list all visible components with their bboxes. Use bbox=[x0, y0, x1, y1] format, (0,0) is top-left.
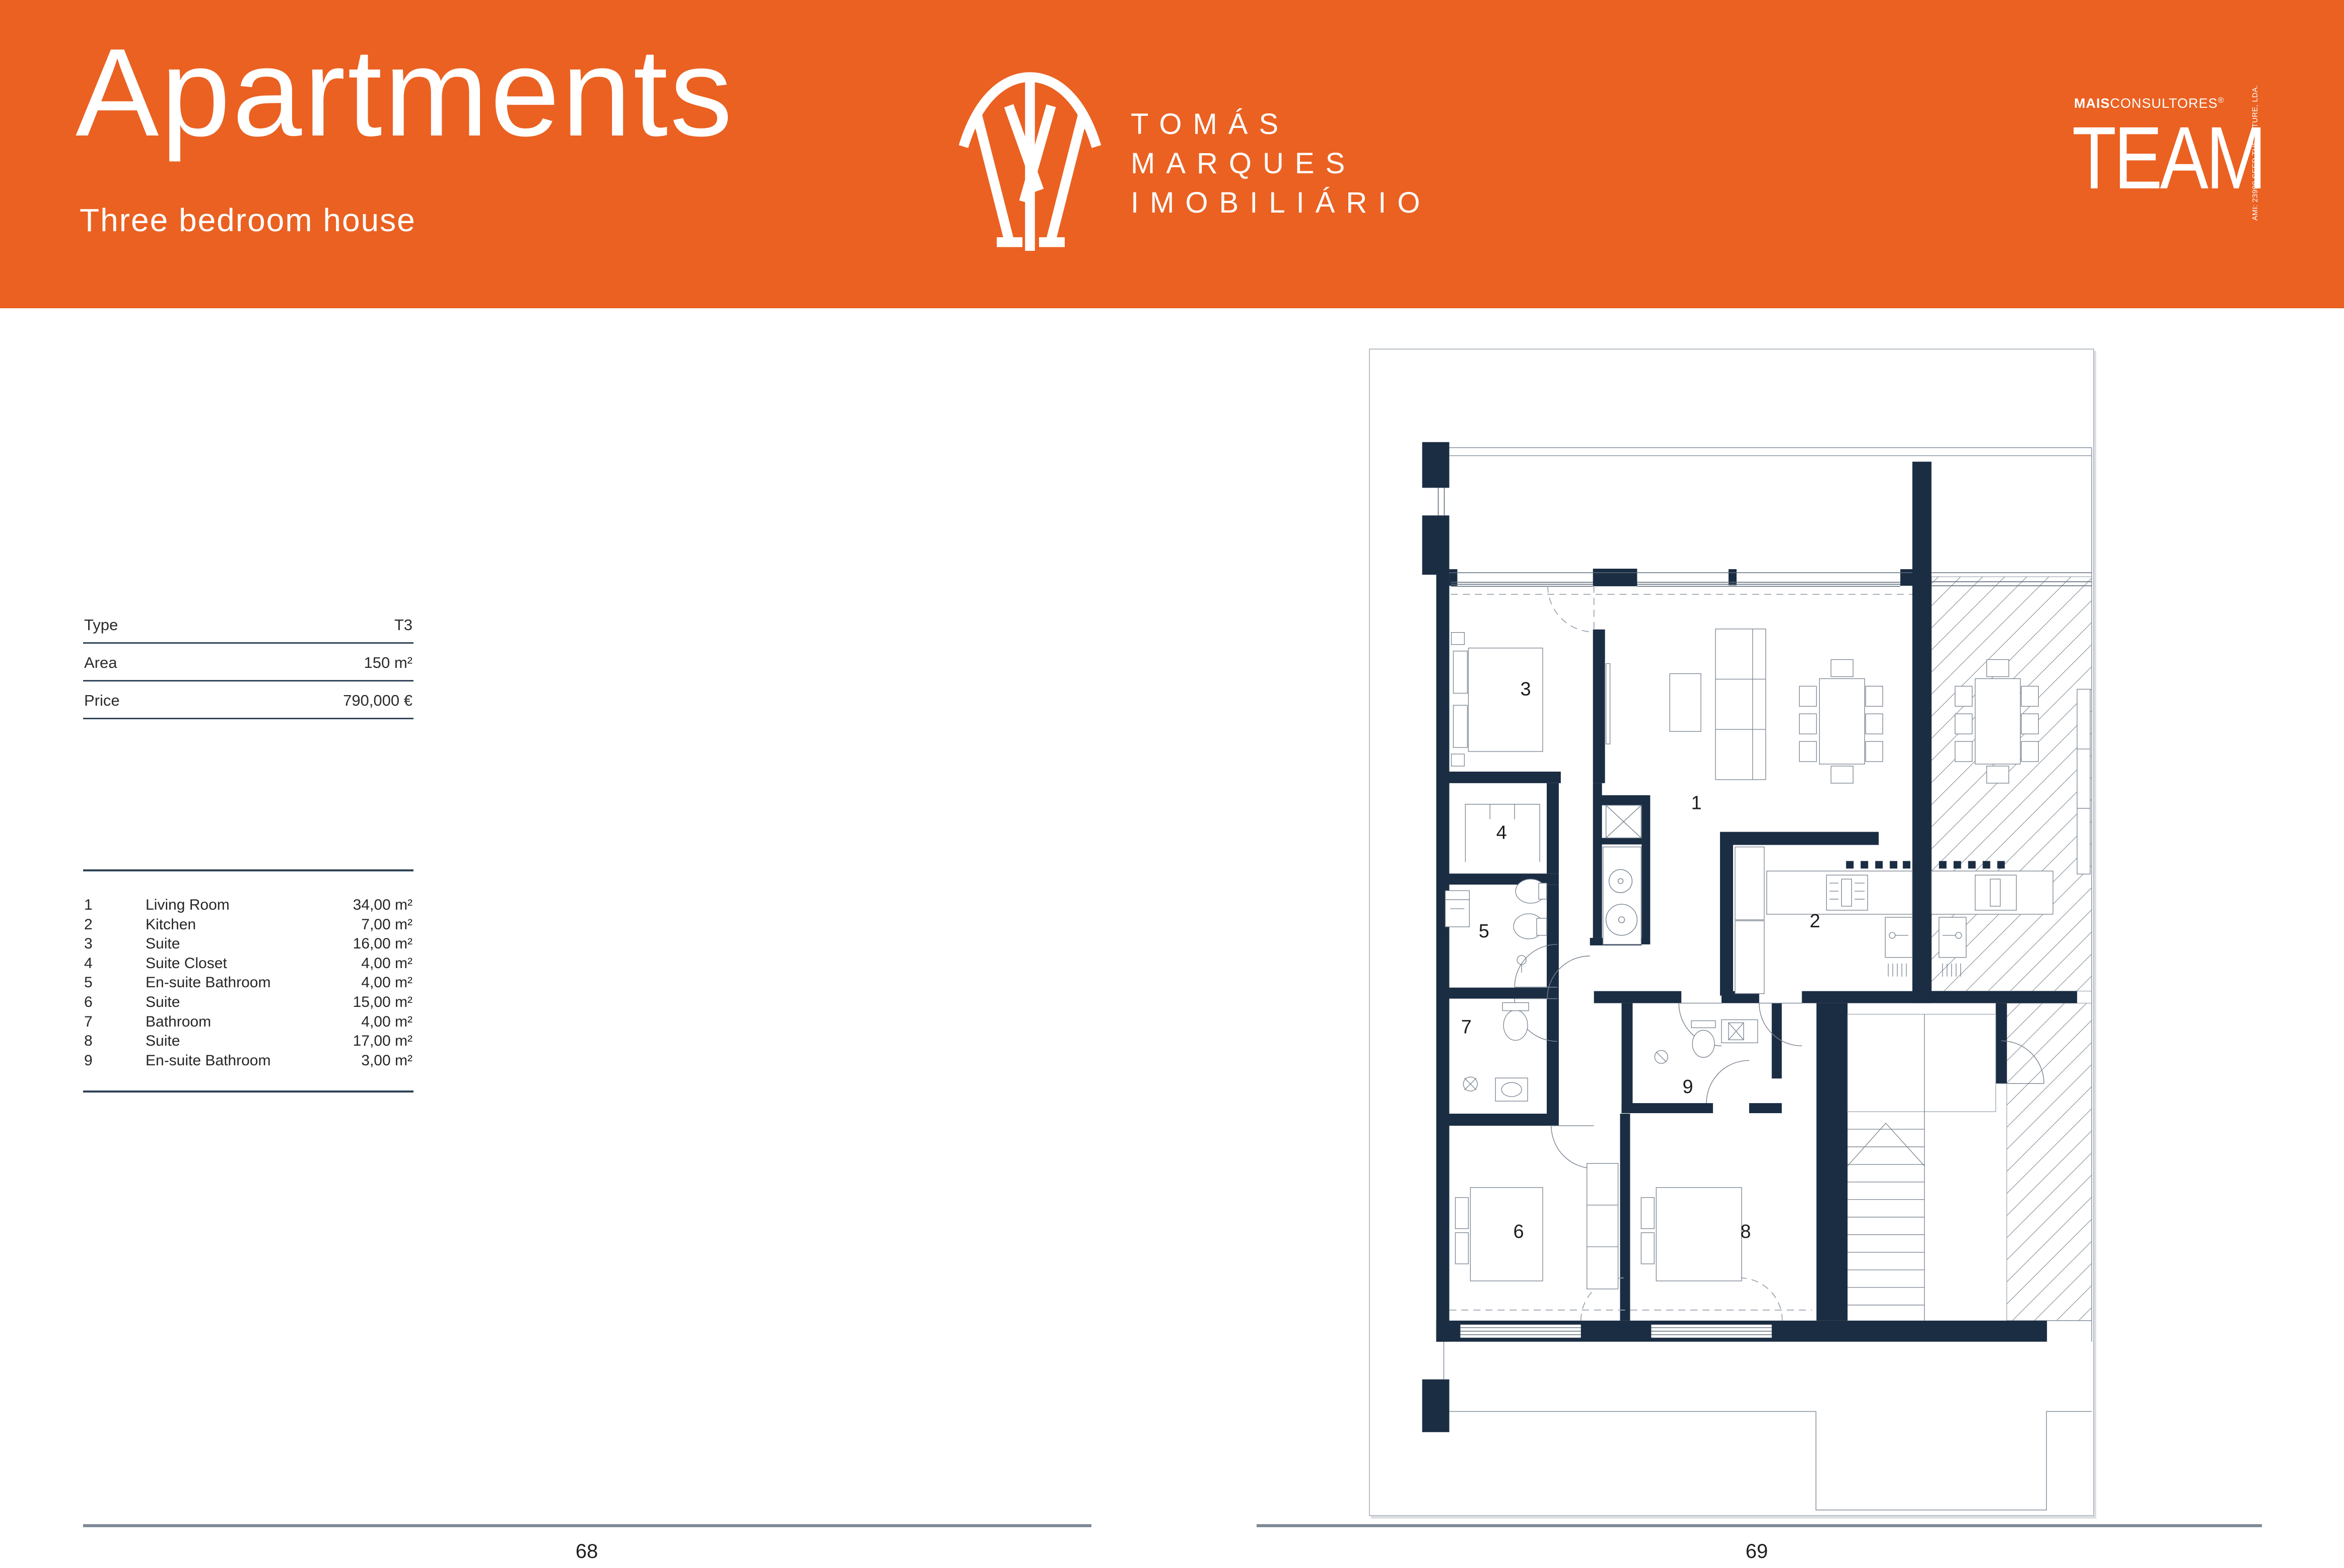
legend-num: 1 bbox=[84, 896, 146, 915]
legend-num: 5 bbox=[84, 973, 146, 993]
legend-name: Bathroom bbox=[146, 1012, 361, 1032]
registered-mark: ® bbox=[2218, 96, 2225, 105]
team-side-text: AMI: 23990 SEED THE FUTURE, LDA. bbox=[2251, 115, 2259, 221]
legend-num: 6 bbox=[84, 993, 146, 1012]
info-value: T3 bbox=[394, 616, 412, 634]
header-band: Apartments Three bedroom house TOMÁS MAR… bbox=[0, 0, 2344, 308]
legend-name: Suite bbox=[146, 934, 353, 954]
tomas-marques-monogram-icon bbox=[954, 70, 1106, 251]
info-row-price: Price 790,000 € bbox=[83, 681, 413, 719]
brand-line-1: TOMÁS bbox=[1131, 105, 1431, 144]
legend-row: 4Suite Closet4,00 m² bbox=[84, 954, 412, 974]
room-label-living: 1 bbox=[1691, 793, 1702, 814]
page-title: Apartments bbox=[76, 14, 734, 170]
legend-area: 15,00 m² bbox=[353, 993, 412, 1012]
legend-name: Suite bbox=[146, 1032, 353, 1051]
brand-line-2: MARQUES bbox=[1131, 144, 1431, 183]
info-row-area: Area 150 m² bbox=[83, 644, 413, 681]
legend-row: 7Bathroom4,00 m² bbox=[84, 1012, 412, 1032]
floor-plan-frame: 1 2 3 4 5 6 7 8 9 bbox=[1369, 349, 2094, 1516]
page-number-right: 69 bbox=[1727, 1540, 1787, 1563]
legend-area: 4,00 m² bbox=[361, 1012, 412, 1032]
team-wordmark: TEAM bbox=[2072, 110, 2264, 208]
footer-divider-left bbox=[83, 1524, 1091, 1527]
legend-name: En-suite Bathroom bbox=[146, 973, 361, 993]
legend-area: 17,00 m² bbox=[353, 1032, 412, 1051]
facade-glazing bbox=[1438, 488, 2092, 586]
legend-row: 2Kitchen7,00 m² bbox=[84, 915, 412, 935]
utility-shaft bbox=[1603, 805, 1641, 944]
brand-wordmark: TOMÁS MARQUES IMOBILIÁRIO bbox=[1131, 105, 1431, 223]
floor-plan-drawing: 1 2 3 4 5 6 7 8 9 bbox=[1370, 350, 2093, 1515]
legend-name: En-suite Bathroom bbox=[146, 1051, 361, 1071]
legend-row: 1Living Room34,00 m² bbox=[84, 896, 412, 915]
legend-num: 3 bbox=[84, 934, 146, 954]
legend-name: Kitchen bbox=[146, 915, 361, 935]
info-row-type: Type T3 bbox=[83, 606, 413, 644]
room-label-suite3: 3 bbox=[1521, 678, 1531, 700]
legend-area: 4,00 m² bbox=[361, 954, 412, 974]
brochure-page: Apartments Three bedroom house TOMÁS MAR… bbox=[0, 0, 2344, 1568]
info-value: 790,000 € bbox=[343, 692, 412, 710]
room-label-bath7: 7 bbox=[1461, 1016, 1472, 1038]
room-label-bath9: 9 bbox=[1683, 1076, 1693, 1098]
page-number-left: 68 bbox=[557, 1540, 617, 1563]
footer-divider-right bbox=[1257, 1524, 2262, 1527]
legend-name: Suite bbox=[146, 993, 353, 1012]
legend-num: 2 bbox=[84, 915, 146, 935]
room-labels: 1 2 3 4 5 6 7 8 9 bbox=[1461, 678, 1820, 1242]
info-value: 150 m² bbox=[364, 654, 412, 672]
legend-name: Suite Closet bbox=[146, 954, 361, 974]
legend-num: 9 bbox=[84, 1051, 146, 1071]
legend-num: 7 bbox=[84, 1012, 146, 1032]
info-label: Area bbox=[84, 654, 117, 672]
legend-num: 4 bbox=[84, 954, 146, 974]
room-legend-table: 1Living Room34,00 m² 2Kitchen7,00 m² 3Su… bbox=[83, 869, 413, 1093]
brand-line-3: IMOBILIÁRIO bbox=[1131, 183, 1431, 223]
legend-area: 4,00 m² bbox=[361, 973, 412, 993]
legend-row: 9En-suite Bathroom3,00 m² bbox=[84, 1051, 412, 1071]
room-label-bath5: 5 bbox=[1479, 921, 1489, 942]
legend-area: 34,00 m² bbox=[353, 896, 412, 915]
info-label: Price bbox=[84, 692, 120, 710]
room-label-closet4: 4 bbox=[1496, 823, 1507, 844]
legend-name: Living Room bbox=[146, 896, 353, 915]
maisconsultores-team-logo: MAISCONSULTORES® TEAM AMI: 23990 SEED TH… bbox=[2074, 96, 2286, 247]
legend-row: 5En-suite Bathroom4,00 m² bbox=[84, 973, 412, 993]
legend-num: 8 bbox=[84, 1032, 146, 1051]
room-label-suite6: 6 bbox=[1513, 1221, 1524, 1242]
room-label-kitchen: 2 bbox=[1810, 911, 1820, 932]
legend-area: 7,00 m² bbox=[361, 915, 412, 935]
staircase bbox=[1847, 1014, 1995, 1321]
info-label: Type bbox=[84, 616, 118, 634]
room-label-suite8: 8 bbox=[1740, 1221, 1751, 1242]
legend-row: 6Suite15,00 m² bbox=[84, 993, 412, 1012]
unit-info-table: Type T3 Area 150 m² Price 790,000 € bbox=[83, 606, 413, 719]
legend-row: 8Suite17,00 m² bbox=[84, 1032, 412, 1051]
legend-area: 16,00 m² bbox=[353, 934, 412, 954]
legend-area: 3,00 m² bbox=[361, 1051, 412, 1071]
legend-row: 3Suite16,00 m² bbox=[84, 934, 412, 954]
page-subtitle: Three bedroom house bbox=[80, 201, 416, 239]
